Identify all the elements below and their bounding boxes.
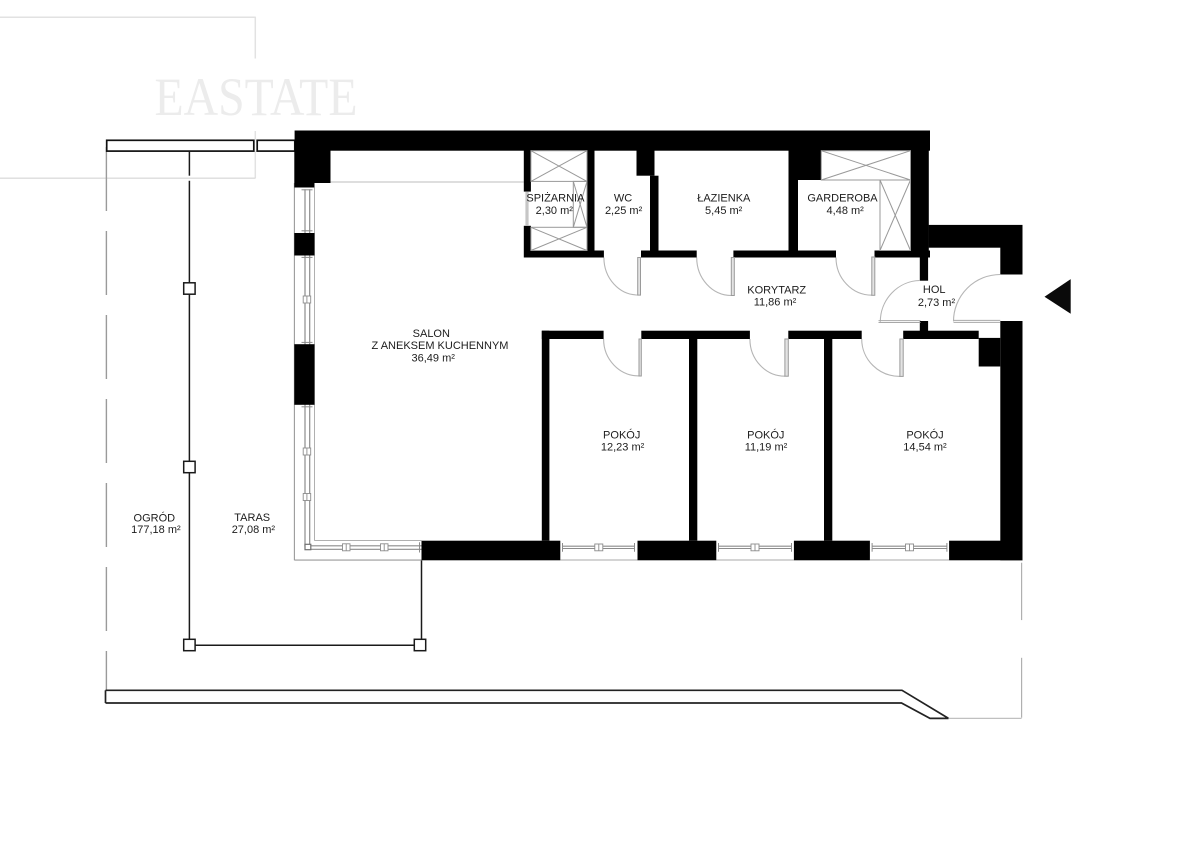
svg-text:27,08 m²: 27,08 m² (232, 524, 276, 536)
svg-text:11,86 m²: 11,86 m² (754, 297, 797, 309)
svg-text:12,23 m²: 12,23 m² (601, 441, 645, 453)
svg-text:36,49 m²: 36,49 m² (411, 353, 455, 365)
svg-text:SALON: SALON (413, 328, 450, 340)
svg-text:GARDEROBA: GARDEROBA (807, 193, 878, 205)
svg-text:POKÓJ: POKÓJ (906, 428, 943, 441)
svg-text:SPIŻARNIA: SPIŻARNIA (526, 192, 585, 205)
svg-text:2,73 m²: 2,73 m² (918, 297, 956, 309)
svg-text:POKÓJ: POKÓJ (603, 428, 640, 441)
svg-text:2,30 m²: 2,30 m² (536, 205, 574, 217)
svg-text:TARAS: TARAS (234, 512, 270, 524)
svg-text:5,45 m²: 5,45 m² (705, 205, 743, 217)
svg-text:OGRÓD: OGRÓD (134, 512, 176, 525)
svg-text:2,25 m²: 2,25 m² (605, 205, 643, 217)
svg-text:WC: WC (614, 193, 632, 205)
svg-text:KORYTARZ: KORYTARZ (747, 284, 806, 296)
svg-text:ŁAZIENKA: ŁAZIENKA (697, 193, 751, 205)
svg-text:Z ANEKSEM KUCHENNYM: Z ANEKSEM KUCHENNYM (372, 340, 509, 352)
svg-text:14,54 m²: 14,54 m² (903, 441, 947, 453)
svg-text:HOL: HOL (923, 284, 946, 296)
svg-text:11,19 m²: 11,19 m² (745, 441, 788, 453)
svg-text:177,18 m²: 177,18 m² (131, 524, 181, 536)
svg-text:EASTATE: EASTATE (155, 67, 358, 127)
svg-text:POKÓJ: POKÓJ (747, 428, 784, 441)
svg-text:4,48 m²: 4,48 m² (827, 205, 865, 217)
